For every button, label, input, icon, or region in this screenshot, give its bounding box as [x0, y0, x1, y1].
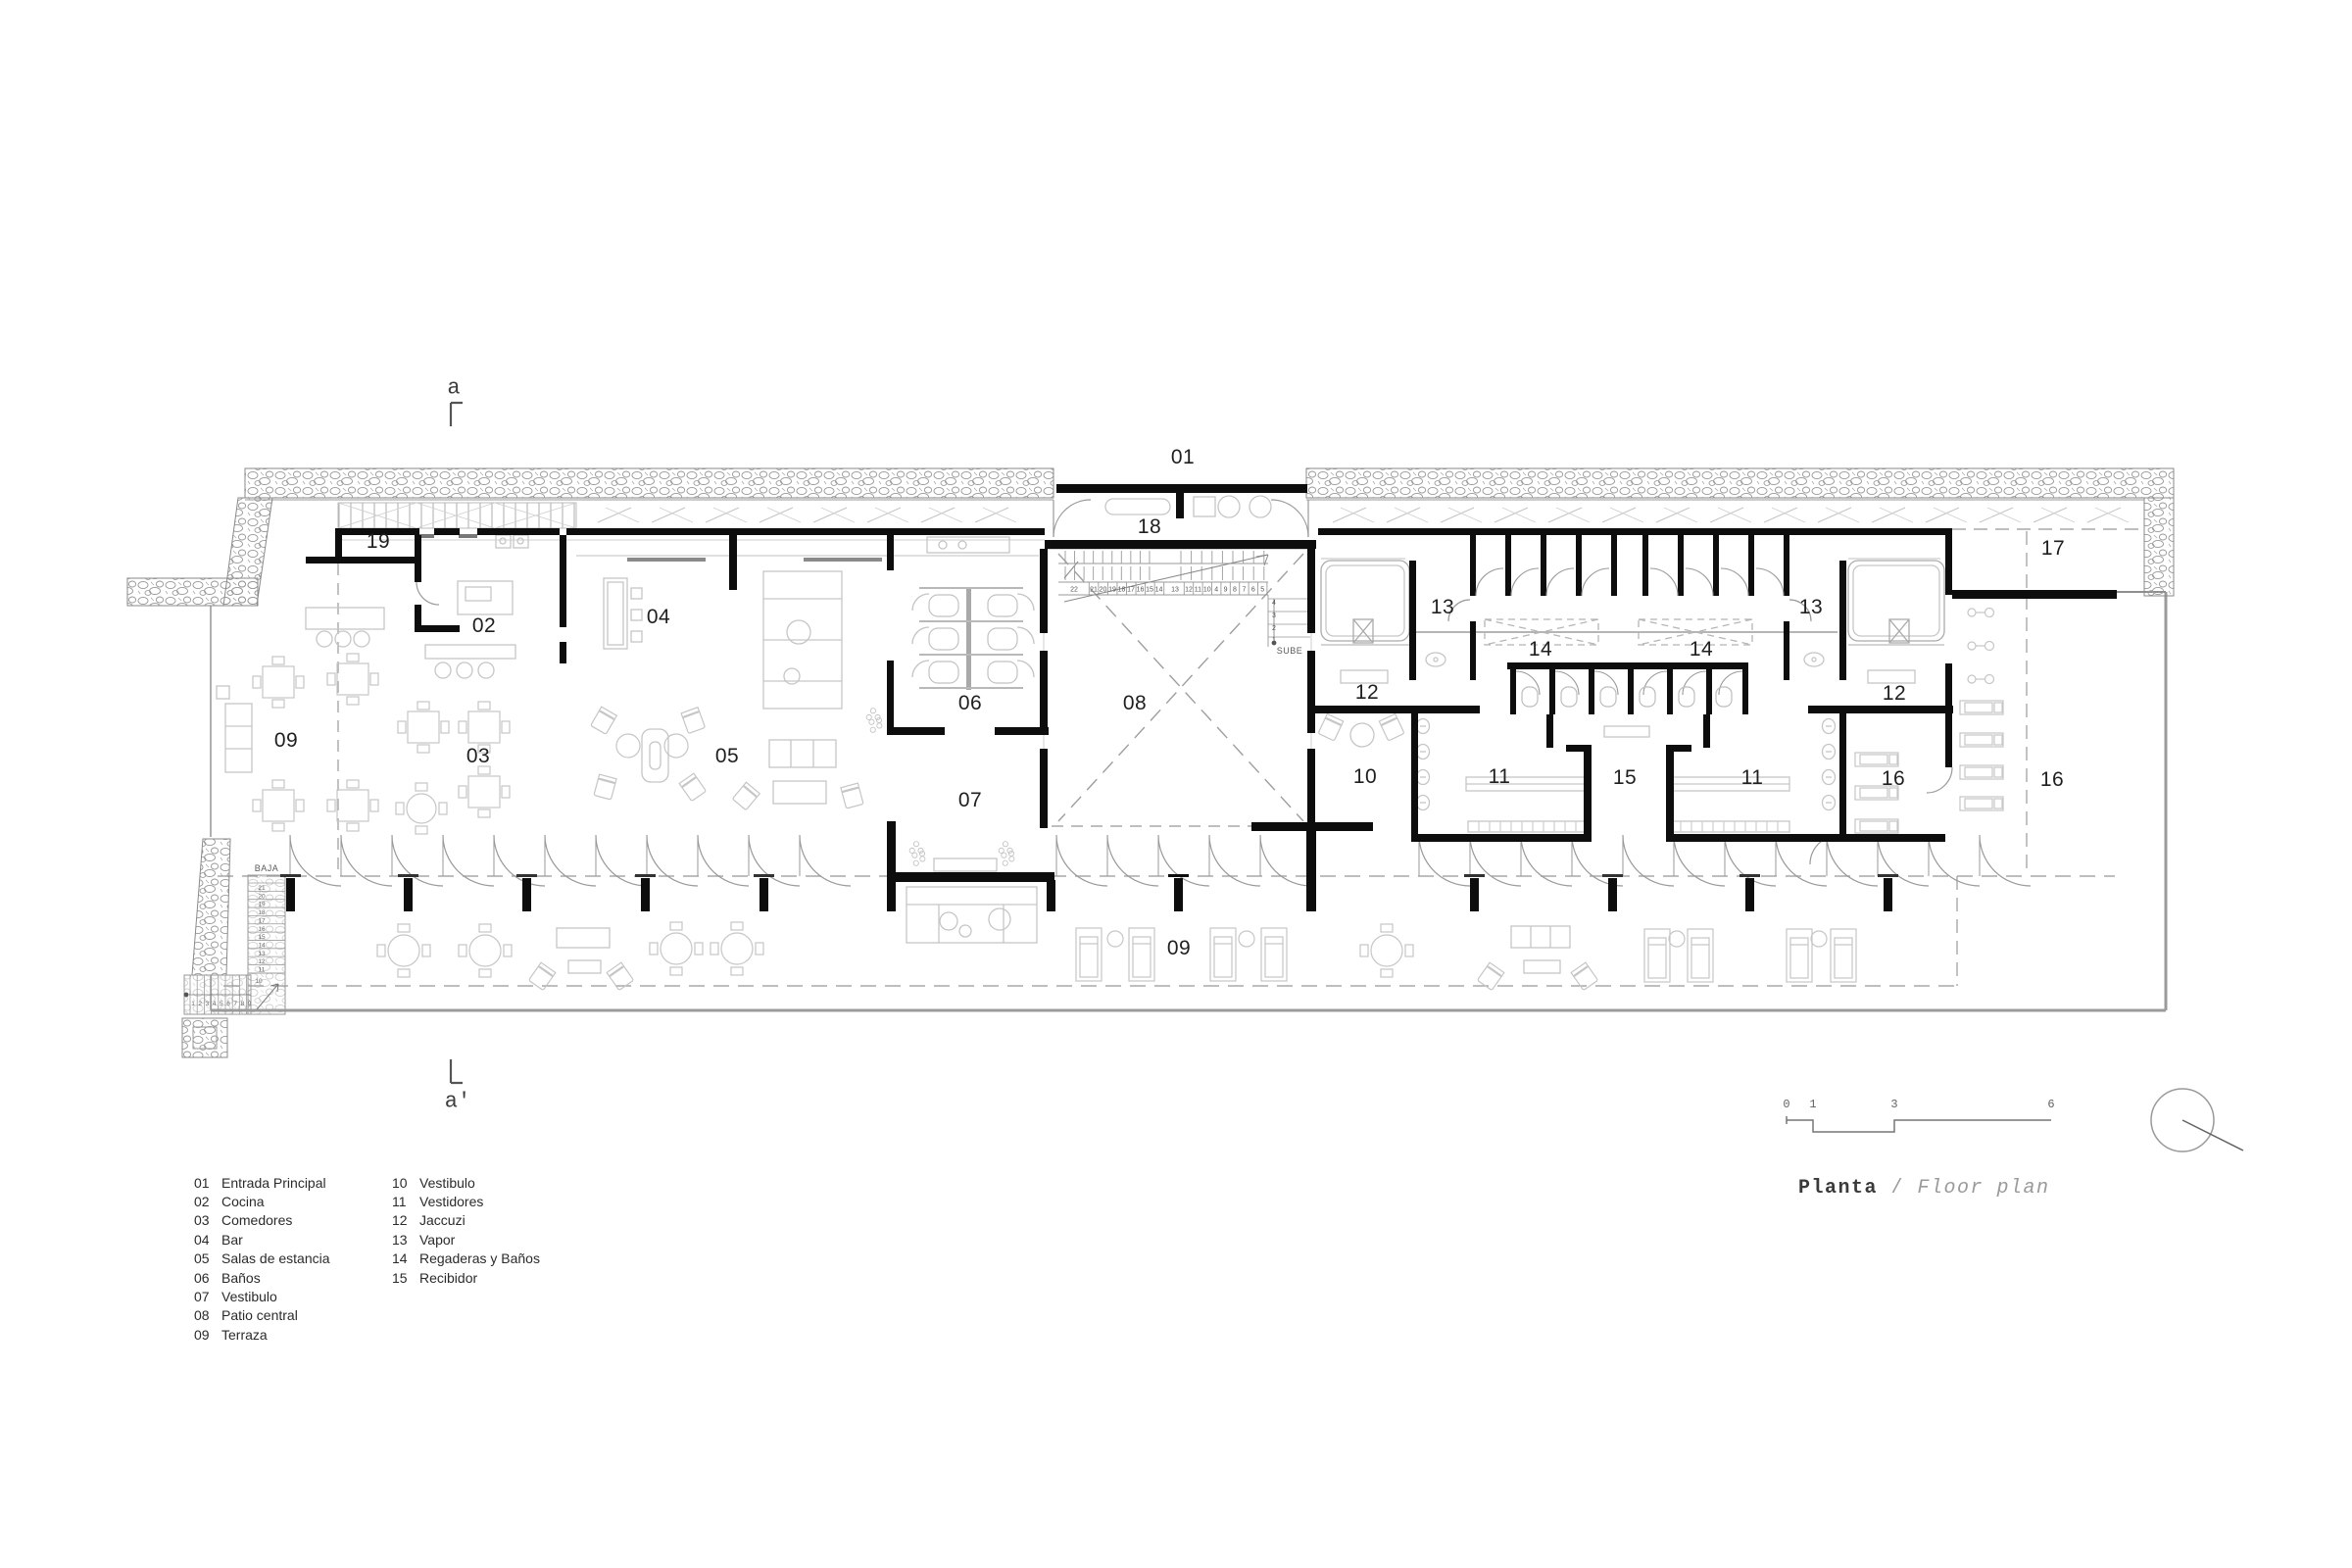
svg-text:8: 8 — [1233, 587, 1237, 594]
legend-row: 07Vestibulo — [194, 1287, 330, 1305]
title-sub: Floor plan — [1918, 1177, 2050, 1200]
svg-text:12: 12 — [258, 958, 266, 965]
room-label: 08 — [1123, 692, 1147, 715]
drawing-title: Planta / Floor plan — [1798, 1177, 2050, 1200]
legend-name: Patio central — [221, 1307, 298, 1323]
svg-text:8: 8 — [241, 1001, 245, 1007]
legend-name: Bar — [221, 1232, 243, 1248]
svg-text:SUBE: SUBE — [1277, 646, 1303, 656]
room-label: 11 — [1741, 766, 1764, 790]
svg-text:4: 4 — [213, 1001, 217, 1007]
legend-row: 14Regaderas y Baños — [392, 1249, 540, 1268]
scale-number: 6 — [2047, 1098, 2054, 1111]
room-label: 06 — [958, 692, 982, 715]
svg-text:13: 13 — [258, 951, 266, 957]
legend-name: Regaderas y Baños — [419, 1250, 540, 1266]
room-label: 12 — [1883, 682, 1906, 706]
legend-row: 11Vestidores — [392, 1192, 540, 1210]
legend-name: Cocina — [221, 1194, 265, 1209]
svg-text:11: 11 — [259, 967, 266, 974]
room-label: 13 — [1431, 596, 1454, 619]
north-compass-icon — [2151, 1089, 2243, 1151]
floor-plan-canvas: 222120191817161514131211104987654321SUBE… — [0, 0, 2352, 1568]
room-label: 04 — [647, 606, 670, 629]
legend-name: Baños — [221, 1270, 261, 1286]
roof-hatch-ticks — [598, 508, 2129, 522]
svg-text:22: 22 — [1070, 587, 1078, 594]
svg-text:16: 16 — [258, 926, 266, 933]
room-label: 10 — [1353, 765, 1377, 789]
legend-number: 05 — [194, 1250, 221, 1266]
svg-text:20: 20 — [1100, 587, 1107, 594]
legend-number: 04 — [194, 1232, 221, 1248]
svg-text:1: 1 — [191, 1001, 195, 1007]
svg-text:17: 17 — [258, 917, 266, 924]
legend-row: 15Recibidor — [392, 1268, 540, 1287]
title-separator: / — [1878, 1177, 1918, 1200]
legend-number: 02 — [194, 1194, 221, 1209]
legend-number: 13 — [392, 1232, 419, 1248]
room-label: 14 — [1690, 638, 1713, 661]
room-label: 05 — [715, 745, 739, 768]
legend-row: 01Entrada Principal — [194, 1173, 330, 1192]
svg-text:14: 14 — [258, 942, 266, 949]
legend-row: 03Comedores — [194, 1211, 330, 1230]
svg-text:13: 13 — [1171, 587, 1179, 594]
room-label: 17 — [2041, 537, 2065, 561]
svg-text:5: 5 — [1260, 587, 1264, 594]
room-label: 16 — [2040, 768, 2064, 792]
svg-text:17: 17 — [1127, 587, 1135, 594]
room-label: 11 — [1489, 765, 1511, 789]
door-arcs — [416, 500, 1952, 864]
legend-number: 06 — [194, 1270, 221, 1286]
legend-number: 07 — [194, 1289, 221, 1304]
svg-text:7: 7 — [233, 1001, 237, 1007]
svg-text:16: 16 — [1137, 587, 1145, 594]
legend-row: 09Terraza — [194, 1325, 330, 1344]
legend-name: Vapor — [419, 1232, 455, 1248]
legend-row: 13Vapor — [392, 1230, 540, 1249]
room-label: 07 — [958, 789, 982, 812]
legend-number: 09 — [194, 1327, 221, 1343]
svg-text:14: 14 — [1155, 587, 1163, 594]
svg-text:3: 3 — [206, 1001, 210, 1007]
room-label: 01 — [1171, 446, 1195, 469]
svg-text:10: 10 — [1203, 587, 1211, 594]
legend-name: Recibidor — [419, 1270, 477, 1286]
svg-text:9: 9 — [1224, 587, 1228, 594]
legend-number: 14 — [392, 1250, 419, 1266]
legend-name: Entrada Principal — [221, 1175, 326, 1191]
svg-text:11: 11 — [1195, 587, 1201, 594]
legend-number: 08 — [194, 1307, 221, 1323]
room-label: 09 — [274, 729, 298, 753]
room-label: 16 — [1882, 767, 1905, 791]
svg-text:4: 4 — [1214, 587, 1218, 594]
legend-row: 04Bar — [194, 1230, 330, 1249]
svg-text:6: 6 — [226, 1001, 230, 1007]
scale-number: 0 — [1783, 1098, 1789, 1111]
svg-text:18: 18 — [1118, 587, 1126, 594]
legend-number: 12 — [392, 1212, 419, 1228]
title-main: Planta — [1798, 1177, 1878, 1200]
svg-text:7: 7 — [1242, 587, 1246, 594]
furniture — [217, 496, 2003, 991]
svg-text:21: 21 — [258, 885, 266, 892]
central-stair — [1058, 551, 1310, 647]
svg-text:BAJA: BAJA — [255, 863, 279, 873]
legend-name: Terraza — [221, 1327, 268, 1343]
room-label: 19 — [367, 530, 390, 554]
svg-text:1: 1 — [1272, 637, 1276, 644]
legend-row: 08Patio central — [194, 1306, 330, 1325]
trellis-band — [338, 503, 576, 528]
legend-column-1: 01Entrada Principal02Cocina03Comedores04… — [194, 1173, 330, 1345]
legend-number: 03 — [194, 1212, 221, 1228]
svg-text:2: 2 — [198, 1001, 202, 1007]
legend-row: 02Cocina — [194, 1192, 330, 1210]
svg-text:9: 9 — [248, 1001, 252, 1007]
room-label: 12 — [1355, 681, 1379, 705]
svg-text:20: 20 — [258, 893, 266, 900]
legend-row: 06Baños — [194, 1268, 330, 1287]
svg-text:21: 21 — [1090, 587, 1098, 594]
legend-number: 01 — [194, 1175, 221, 1191]
legend-column-2: 10Vestibulo11Vestidores12Jaccuzi13Vapor1… — [392, 1173, 540, 1287]
svg-text:15: 15 — [258, 934, 266, 941]
room-label: 15 — [1613, 766, 1637, 790]
room-label: 13 — [1799, 596, 1823, 619]
legend-number: 10 — [392, 1175, 419, 1191]
facade-pivot-doors — [280, 835, 2031, 911]
legend-row: 12Jaccuzi — [392, 1211, 540, 1230]
svg-text:5: 5 — [220, 1001, 223, 1007]
room-label: 18 — [1138, 515, 1161, 539]
section-marker-a: a — [447, 376, 460, 401]
svg-text:15: 15 — [1146, 587, 1153, 594]
svg-text:4: 4 — [1272, 600, 1276, 607]
legend-name: Comedores — [221, 1212, 292, 1228]
legend-row: 05Salas de estancia — [194, 1249, 330, 1268]
room-label: 14 — [1529, 638, 1552, 661]
svg-text:10: 10 — [255, 978, 263, 985]
section-marker-a-prime: a' — [445, 1090, 470, 1114]
legend-name: Salas de estancia — [221, 1250, 330, 1266]
legend-name: Jaccuzi — [419, 1212, 465, 1228]
svg-text:6: 6 — [1251, 587, 1255, 594]
svg-text:2: 2 — [1272, 625, 1276, 632]
room-label: 02 — [472, 614, 496, 638]
scale-bar — [1787, 1116, 2051, 1132]
plan-drawing: 222120191817161514131211104987654321SUBE… — [0, 0, 2352, 1568]
legend-number: 15 — [392, 1270, 419, 1286]
legend-name: Vestibulo — [221, 1289, 277, 1304]
scale-number: 1 — [1809, 1098, 1816, 1111]
svg-text:18: 18 — [258, 909, 266, 916]
svg-text:12: 12 — [1185, 587, 1193, 594]
svg-text:19: 19 — [258, 902, 266, 908]
scale-number: 3 — [1890, 1098, 1897, 1111]
legend-name: Vestibulo — [419, 1175, 475, 1191]
svg-text:3: 3 — [1272, 612, 1276, 619]
room-label: 03 — [466, 745, 490, 768]
legend-number: 11 — [392, 1194, 419, 1209]
legend-name: Vestidores — [419, 1194, 483, 1209]
legend-row: 10Vestibulo — [392, 1173, 540, 1192]
room-label: 09 — [1167, 937, 1191, 960]
svg-text:19: 19 — [1108, 587, 1116, 594]
